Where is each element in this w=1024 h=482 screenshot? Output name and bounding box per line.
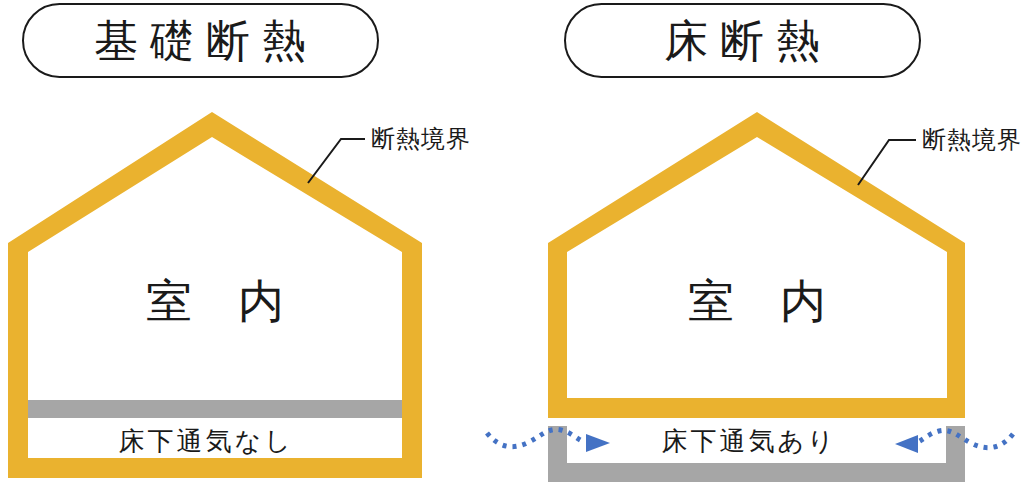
left-interior-label: 室 内 bbox=[146, 275, 284, 327]
right-interior-label: 室 内 bbox=[688, 275, 826, 327]
airflow-dotted-path-right bbox=[918, 430, 1013, 447]
left-boundary-leader-line bbox=[308, 139, 365, 183]
foundation-insulation-diagram: 基礎断熱 室 内 床下通気なし 断熱境界 bbox=[8, 4, 471, 478]
right-floor-note: 床下通気あり bbox=[661, 426, 836, 456]
left-boundary-label: 断熱境界 bbox=[371, 125, 471, 152]
right-title: 床断熱 bbox=[664, 16, 832, 65]
airflow-arrowhead-left bbox=[586, 434, 610, 452]
airflow-arrowhead-right bbox=[895, 435, 918, 453]
right-foundation-slab bbox=[548, 463, 965, 482]
right-boundary-leader-line bbox=[858, 140, 916, 185]
airflow-dotted-path-left bbox=[487, 429, 582, 446]
left-floor-slab bbox=[28, 400, 402, 418]
right-boundary-label: 断熱境界 bbox=[922, 126, 1022, 153]
left-title: 基礎断熱 bbox=[94, 16, 318, 65]
left-floor-note: 床下通気なし bbox=[118, 426, 293, 456]
floor-insulation-diagram: 床断熱 室 内 床下通気あり 断熱境界 bbox=[487, 4, 1022, 482]
right-insulation-boundary bbox=[548, 112, 965, 418]
insulation-comparison-diagram: 基礎断熱 室 内 床下通気なし 断熱境界 床断熱 室 bbox=[0, 0, 1024, 482]
